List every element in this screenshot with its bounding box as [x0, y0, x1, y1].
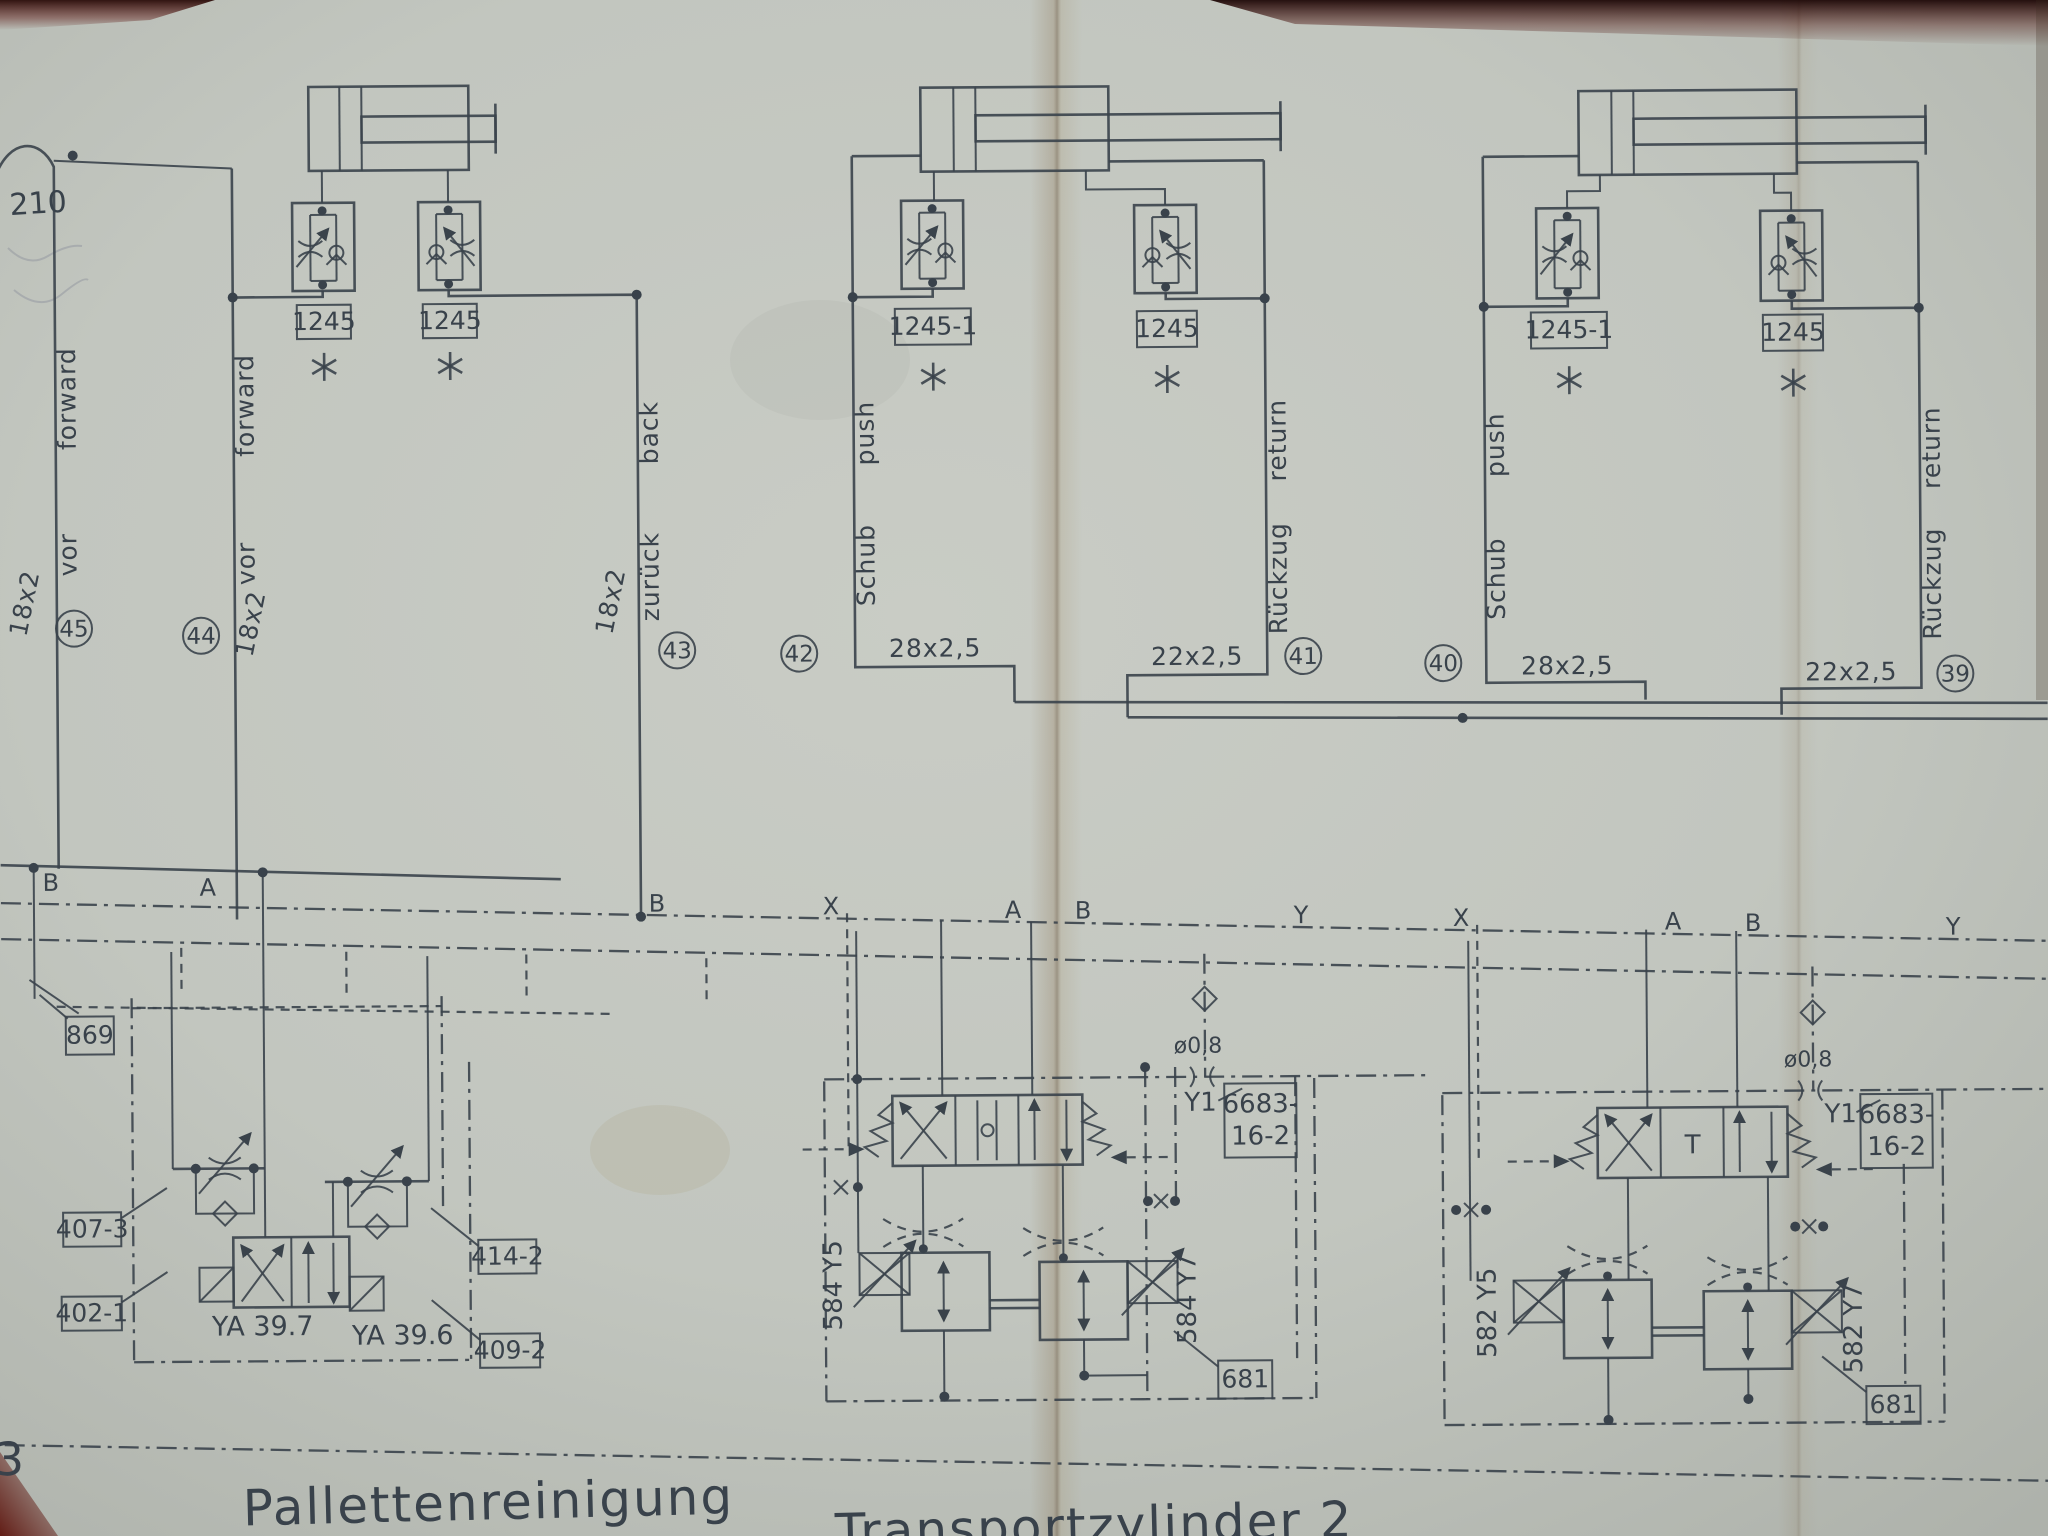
solenoid-label: YA 39.7: [211, 1311, 314, 1343]
port-letter: B: [1745, 909, 1762, 937]
ref-414-2: 414-2: [471, 1241, 544, 1271]
fcv-label: 1245: [418, 306, 482, 335]
junction-dot: [636, 912, 646, 922]
paper-stain: [590, 1105, 730, 1195]
valve-ref: 16-2: [1231, 1121, 1290, 1151]
pipe-direction-en: push: [1481, 412, 1510, 477]
fcv-label: 1245: [1135, 314, 1199, 343]
junction-dot: [1260, 293, 1270, 303]
pilot-label: Y1: [1823, 1099, 1857, 1129]
junction-dot: [1458, 713, 1468, 723]
port-letter: B: [42, 869, 59, 897]
ref-409-2: 409-2: [474, 1335, 547, 1365]
station1-title: Pallettenreinigung: [242, 1467, 735, 1536]
fcv-label: 1245-1: [889, 311, 978, 341]
block-ref: 681: [1221, 1364, 1269, 1393]
orifice-label: ø0,8: [1174, 1034, 1223, 1059]
pipe-number: 39: [1941, 661, 1970, 687]
pipe-direction-de: Rückzug: [1263, 522, 1293, 634]
junction-dot: [632, 290, 642, 300]
pipe-direction-en: return: [1916, 406, 1946, 489]
solenoid-label: 584 Y5: [818, 1240, 849, 1331]
pipe-size: 28x2,5: [889, 633, 982, 663]
pipe-direction-de: Schub: [1481, 538, 1511, 620]
pipe-direction-de: vor: [53, 533, 82, 577]
pipe-size: 28x2,5: [1521, 651, 1614, 681]
junction-dot: [68, 151, 78, 161]
pipe-size: 22x2,5: [1151, 641, 1244, 671]
pipe-direction-de: Rückzug: [1917, 527, 1947, 639]
solenoid-label: 582 Y7: [1839, 1283, 1870, 1374]
sheet-number-partial: 3: [0, 1432, 24, 1486]
ref-869: 869: [66, 1020, 114, 1049]
port-letter: B: [1075, 897, 1092, 925]
pipe-number: 45: [59, 617, 88, 643]
valve-ref: 6683-: [1222, 1089, 1298, 1120]
junction-dot: [1479, 302, 1489, 312]
fcv-label: 1245-1: [1525, 315, 1614, 345]
pipe-direction-de: vor: [231, 542, 260, 586]
valve-ref: 16-2: [1867, 1132, 1926, 1162]
valve-tank-mark: T: [1684, 1130, 1701, 1160]
ref-402-1: 402-1: [55, 1298, 128, 1328]
pipe-number: 41: [1289, 644, 1318, 670]
pipe-number: 44: [186, 624, 215, 650]
pipe-number: 43: [662, 638, 691, 664]
fcv-label: 1245: [1761, 317, 1825, 346]
port-letter: A: [1005, 896, 1022, 924]
fold-crease-right: [1778, 0, 1818, 1536]
port-letter: Y: [1293, 901, 1309, 929]
solenoid-label: 584 Y7: [1172, 1254, 1203, 1345]
port-letter: Y: [1945, 912, 1961, 940]
solenoid-label: 582 Y5: [1472, 1268, 1503, 1359]
pipe-direction-de: zurück: [635, 532, 665, 622]
photo-edge-right: [2036, 0, 2048, 700]
pipe-direction-en: return: [1262, 399, 1292, 482]
pipe-note: 210: [9, 185, 68, 223]
paper-background: [0, 0, 2048, 1536]
pipe-direction-en: push: [850, 401, 879, 466]
port-letter: A: [200, 874, 217, 902]
fold-crease-center: [1030, 0, 1082, 1536]
valve-ref: 6683-: [1859, 1100, 1935, 1131]
pipe-number: 40: [1429, 651, 1458, 677]
pipe-direction-de: Schub: [851, 524, 881, 606]
port-letter: X: [1453, 904, 1470, 932]
pipe-size: 22x2,5: [1805, 657, 1898, 687]
fcv-label: 1245: [292, 307, 356, 336]
solenoid-label: YA 39.6: [351, 1320, 454, 1352]
junction-dot: [1914, 303, 1924, 313]
paper-stain: [730, 300, 910, 420]
pipe-direction-en: forward: [52, 347, 82, 450]
pipe-direction-en: back: [634, 401, 663, 465]
orifice-label: ø0,8: [1784, 1047, 1833, 1072]
pipe-number: 42: [784, 641, 813, 667]
pipe-direction-en: forward: [230, 354, 260, 457]
port-letter: B: [649, 890, 666, 918]
port-letter: X: [823, 892, 840, 920]
junction-dot: [848, 292, 858, 302]
ref-407-3: 407-3: [56, 1214, 129, 1244]
block-ref: 681: [1870, 1390, 1918, 1419]
port-letter: A: [1665, 907, 1682, 935]
schematic-canvas: 210 1245 1245 1245-1 1245: [0, 0, 2048, 1536]
photographed-hydraulic-schematic: 210 1245 1245 1245-1 1245: [0, 0, 2048, 1536]
junction-dot: [228, 292, 238, 302]
pilot-label: Y1: [1183, 1088, 1217, 1118]
